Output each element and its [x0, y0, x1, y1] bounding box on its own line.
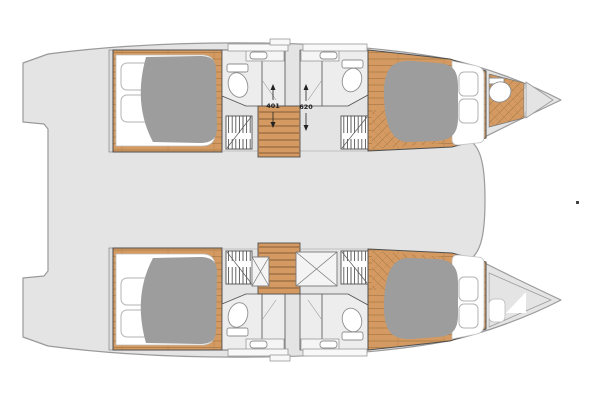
dimension-401-label: 401 [266, 102, 280, 110]
dimension-620-label: 620 [299, 103, 313, 111]
speck [576, 201, 579, 204]
locker-hatch [489, 299, 505, 322]
floorplan-svg: 401 620 [0, 0, 600, 400]
canvas: 401 620 [0, 0, 600, 400]
